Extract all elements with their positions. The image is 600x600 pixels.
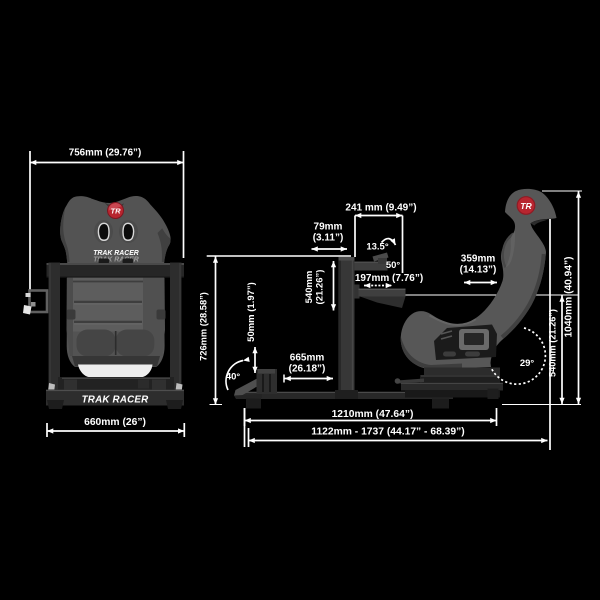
- svg-text:540mm (21.26”): 540mm (21.26”): [548, 309, 558, 377]
- svg-text:1122mm - 1737 (44.17” - 68.39”: 1122mm - 1737 (44.17” - 68.39”): [311, 427, 464, 438]
- svg-text:(21.26”): (21.26”): [315, 270, 326, 305]
- svg-text:660mm (26”): 660mm (26”): [84, 417, 146, 428]
- svg-text:1040mm (40.94”): 1040mm (40.94”): [564, 257, 575, 338]
- svg-text:(26.18”): (26.18”): [289, 364, 326, 375]
- svg-text:TR: TR: [520, 201, 532, 211]
- svg-text:540mm: 540mm: [304, 271, 315, 304]
- svg-text:197mm (7.76”): 197mm (7.76”): [355, 273, 423, 284]
- svg-text:79mm: 79mm: [314, 222, 343, 233]
- svg-text:50mm (1.97”): 50mm (1.97”): [246, 282, 257, 342]
- svg-text:50°: 50°: [386, 260, 401, 271]
- svg-text:726mm (28.58”): 726mm (28.58”): [199, 292, 209, 361]
- svg-text:241 mm (9.49”): 241 mm (9.49”): [345, 203, 416, 214]
- svg-text:665mm: 665mm: [290, 353, 325, 364]
- svg-text:TRAK RACER: TRAK RACER: [82, 395, 149, 406]
- svg-text:TR: TR: [110, 207, 121, 216]
- svg-text:756mm (29.76”): 756mm (29.76”): [69, 148, 141, 159]
- svg-text:29°: 29°: [520, 358, 535, 369]
- svg-text:1210mm (47.64”): 1210mm (47.64”): [332, 409, 414, 420]
- svg-text:(14.13”): (14.13”): [460, 265, 497, 276]
- svg-text:13.5°: 13.5°: [366, 242, 388, 253]
- svg-text:359mm: 359mm: [461, 254, 496, 265]
- svg-text:(3.11”): (3.11”): [313, 233, 344, 244]
